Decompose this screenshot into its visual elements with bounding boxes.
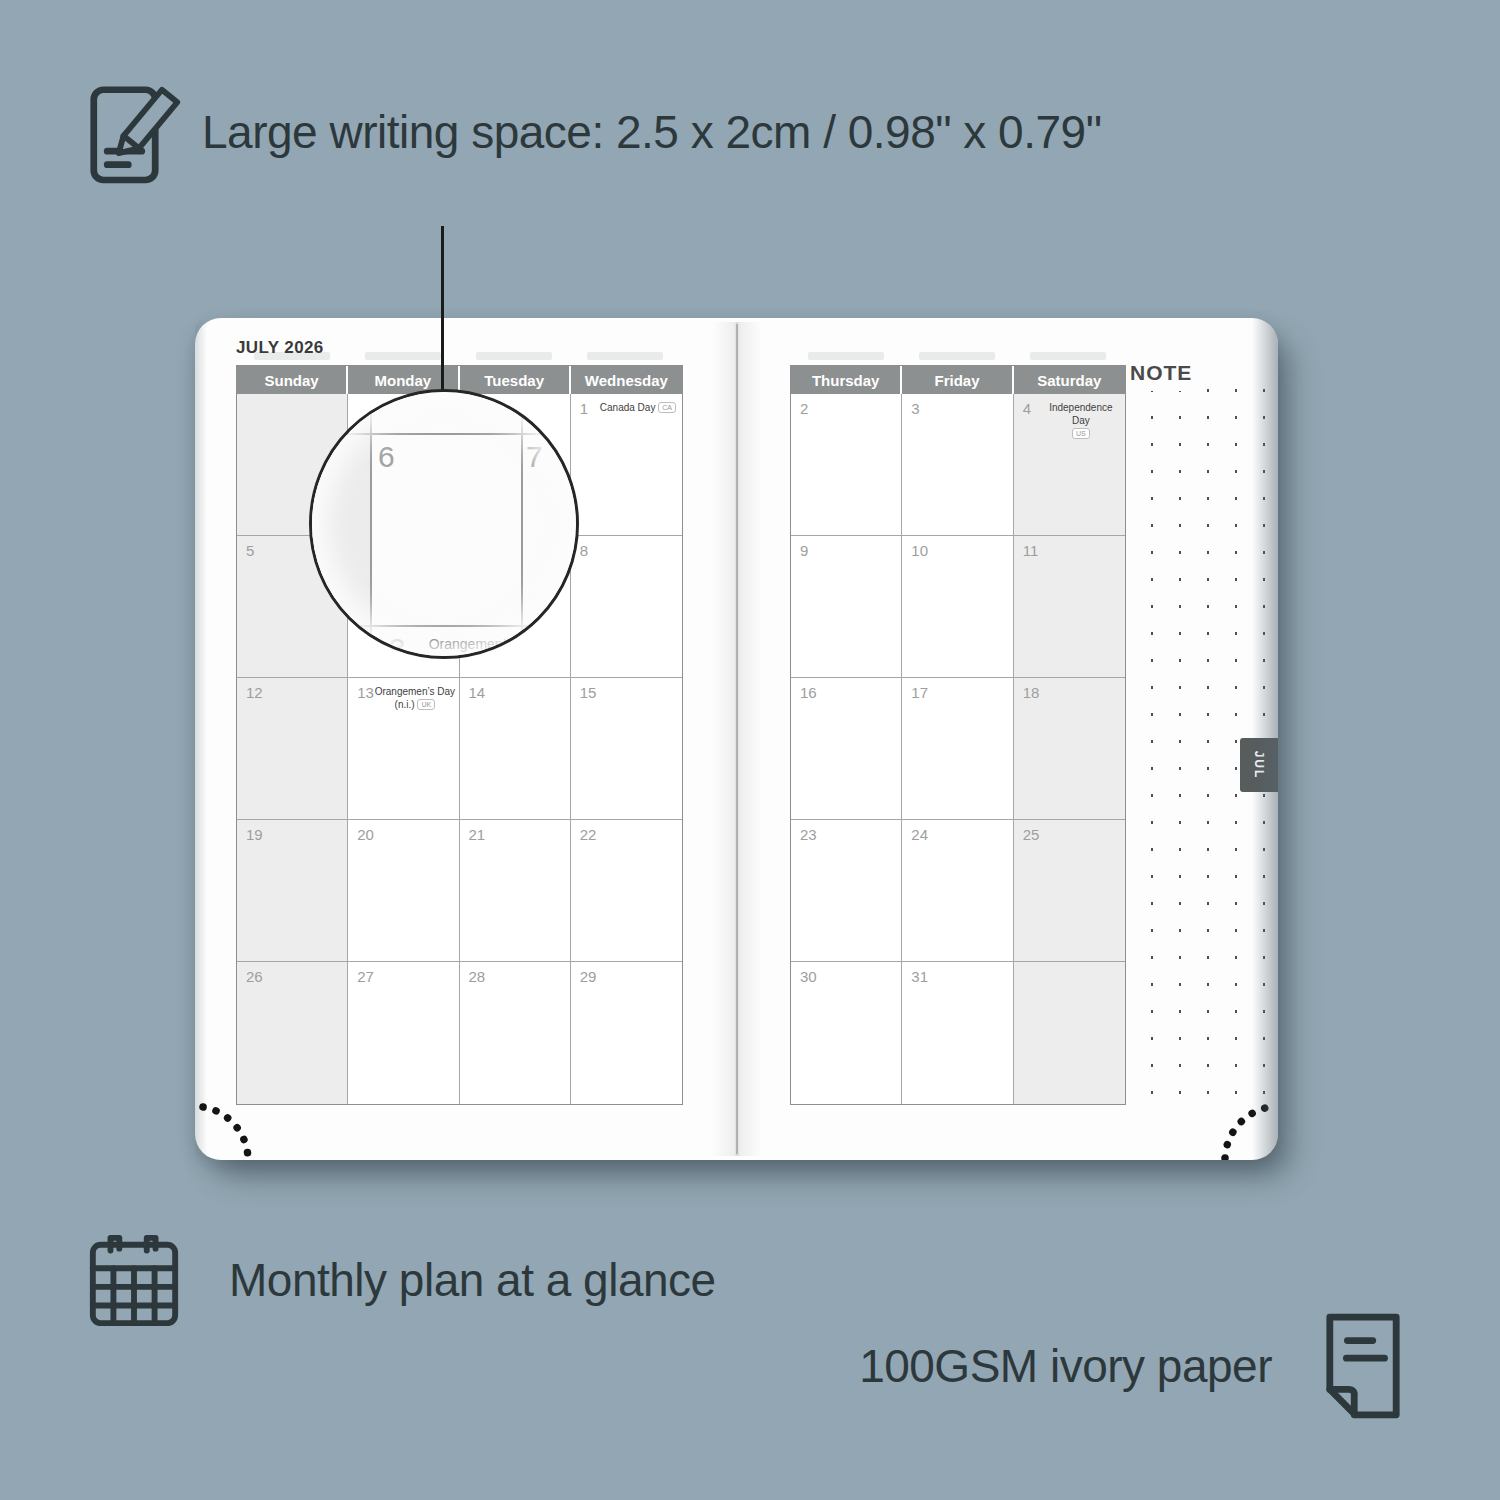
calendar-cell: 10 [902, 536, 1013, 678]
day-header: Saturday [1014, 366, 1125, 394]
feature-writing-space: Large writing space: 2.5 x 2cm / 0.98" x… [88, 76, 1101, 188]
calendar-cell: 13Orangemen’s Day(n.i.) UK [348, 678, 459, 820]
calendar-cell: 27 [348, 962, 459, 1104]
country-badge: UK [417, 699, 435, 710]
calendar-cell: 30 [791, 962, 902, 1104]
day-header: Tuesday [460, 366, 571, 394]
day-number: 4 [1023, 400, 1031, 417]
calendar-cell: 22 [571, 820, 682, 962]
country-badge: CA [658, 402, 676, 413]
calendar-cell: 20 [348, 820, 459, 962]
show-through-mark [365, 352, 441, 360]
country-badge: US [1072, 428, 1090, 439]
calendar-cell: 23 [791, 820, 902, 962]
day-header: Sunday [237, 366, 348, 394]
calendar-cell: 18 [1014, 678, 1125, 820]
calendar-cell: 4Independence DayUS [1014, 394, 1125, 536]
day-header: Friday [902, 366, 1013, 394]
calendar-cell: 12 [237, 678, 348, 820]
calendar-cell: 11 [1014, 536, 1125, 678]
calendar-cell: 28 [460, 962, 571, 1104]
magnifier-glow [312, 392, 576, 656]
day-number: 9 [800, 542, 808, 559]
feature-paper-label: 100GSM ivory paper [859, 1339, 1272, 1393]
day-number: 31 [911, 968, 928, 985]
day-number: 18 [1023, 684, 1040, 701]
calendar-grid-right: ThursdayFridaySaturday234Independence Da… [790, 365, 1126, 1105]
day-number: 24 [911, 826, 928, 843]
day-number: 19 [246, 826, 263, 843]
magnifier-circle: 6 7 13 Orangemen’s Day (n.i.) UK [309, 389, 579, 659]
feature-paper: 100GSM ivory paper [859, 1308, 1404, 1424]
day-number: 17 [911, 684, 928, 701]
calendar-cell: 8 [571, 536, 682, 678]
calendar-cell: 15 [571, 678, 682, 820]
calendar-cell: 9 [791, 536, 902, 678]
feature-monthly-plan-label: Monthly plan at a glance [229, 1253, 716, 1307]
calendar-cell: 1Canada Day CA [571, 394, 682, 536]
calendar-cell: 17 [902, 678, 1013, 820]
day-number: 11 [1023, 542, 1039, 559]
day-header: Wednesday [571, 366, 682, 394]
feature-writing-space-label: Large writing space: 2.5 x 2cm / 0.98" x… [202, 105, 1101, 159]
page-seam [736, 324, 738, 1154]
holiday-label: Independence DayUS [1040, 401, 1122, 440]
day-number: 27 [357, 968, 374, 985]
calendar-cell: 24 [902, 820, 1013, 962]
day-number: 10 [911, 542, 928, 559]
day-number: 3 [911, 400, 919, 417]
page-left-shade [195, 318, 207, 1160]
day-number: 12 [246, 684, 263, 701]
magnifier-pointer-line [441, 226, 444, 396]
calendar-cell: 29 [571, 962, 682, 1104]
calendar-cell: 16 [791, 678, 902, 820]
product-image-stage: Large writing space: 2.5 x 2cm / 0.98" x… [0, 0, 1500, 1500]
day-number: 23 [800, 826, 817, 843]
day-number: 26 [246, 968, 263, 985]
show-through-mark [587, 352, 663, 360]
day-number: 20 [357, 826, 374, 843]
calendar-cell: 3 [902, 394, 1013, 536]
show-through-mark [1030, 352, 1106, 360]
day-number: 8 [580, 542, 588, 559]
holiday-label: Orangemen’s Day(n.i.) UK [374, 685, 455, 711]
show-through-mark [919, 352, 995, 360]
day-number: 25 [1023, 826, 1040, 843]
day-number: 1 [580, 400, 588, 417]
calendar-cell: 26 [237, 962, 348, 1104]
day-number: 14 [469, 684, 486, 701]
note-label: NOTE [1128, 361, 1204, 391]
day-number: 29 [580, 968, 597, 985]
calendar-cell: 31 [902, 962, 1013, 1104]
show-through-mark [476, 352, 552, 360]
day-number: 5 [246, 542, 254, 559]
day-number: 16 [800, 684, 817, 701]
calendar-cell: 21 [460, 820, 571, 962]
calendar-cell: 2 [791, 394, 902, 536]
notepad-pencil-icon [88, 76, 184, 188]
calendar-cell [1014, 962, 1125, 1104]
day-number: 2 [800, 400, 808, 417]
day-number: 30 [800, 968, 817, 985]
calendar-cell: 25 [1014, 820, 1125, 962]
calendar-cell: 19 [237, 820, 348, 962]
month-title: JULY 2026 [236, 338, 324, 358]
note-dot-grid: NOTE [1128, 365, 1270, 1105]
calendar-icon [85, 1230, 183, 1330]
paper-icon [1322, 1308, 1404, 1424]
holiday-label: Canada Day CA [597, 401, 679, 414]
calendar-cell: 14 [460, 678, 571, 820]
day-number: 22 [580, 826, 597, 843]
page-edge-shadow [1252, 318, 1278, 1160]
day-number: 21 [469, 826, 486, 843]
show-through-mark [808, 352, 884, 360]
day-number: 28 [469, 968, 486, 985]
feature-monthly-plan: Monthly plan at a glance [85, 1230, 716, 1330]
day-number: 13 [357, 684, 374, 701]
day-number: 15 [580, 684, 597, 701]
day-header: Thursday [791, 366, 902, 394]
